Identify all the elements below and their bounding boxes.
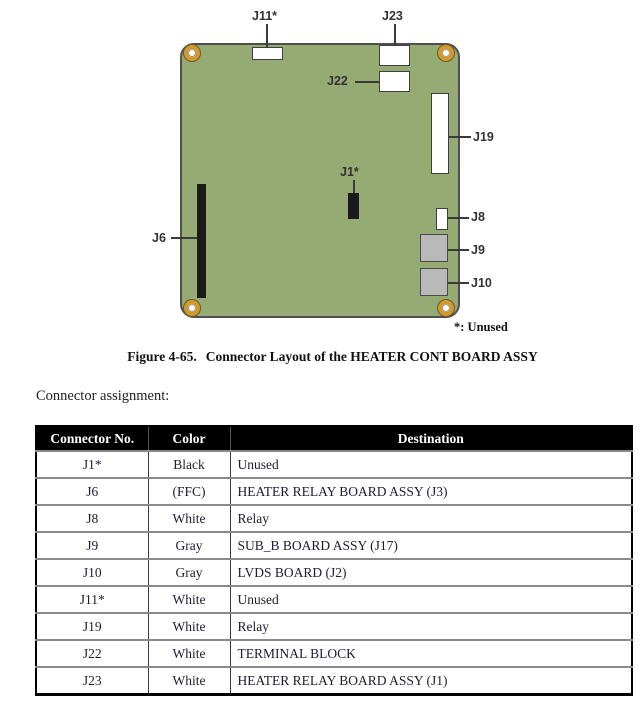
manual-page: J11* J23 J22 J19 J1* J6 J8 J9 J10 *: Unu… (0, 0, 640, 704)
cell-connector: J11* (36, 586, 148, 613)
table-row: J9 Gray SUB_B BOARD ASSY (J17) (36, 532, 632, 559)
cell-destination: Relay (230, 505, 632, 532)
cell-destination: TERMINAL BLOCK (230, 640, 632, 667)
table-row: J22 White TERMINAL BLOCK (36, 640, 632, 667)
label-j11: J11* (252, 9, 277, 23)
cell-color: White (148, 667, 230, 695)
table-header-row: Connector No. Color Destination (36, 426, 632, 451)
leader-line-j22 (355, 81, 379, 83)
figure-number: Figure 4-65. (127, 349, 197, 364)
label-j8: J8 (471, 210, 485, 224)
header-color: Color (148, 426, 230, 451)
connector-j8 (436, 208, 448, 230)
leader-line-j19 (449, 136, 471, 138)
table-row: J1* Black Unused (36, 451, 632, 478)
cell-connector: J1* (36, 451, 148, 478)
table-row: J6 (FFC) HEATER RELAY BOARD ASSY (J3) (36, 478, 632, 505)
unused-footnote: *: Unused (454, 320, 508, 335)
connector-assignment-heading: Connector assignment: (36, 388, 169, 405)
mounting-hole-top-left (184, 45, 200, 61)
cell-color: White (148, 586, 230, 613)
cell-color: White (148, 640, 230, 667)
connector-j22 (379, 71, 410, 92)
connector-layout-diagram: J11* J23 J22 J19 J1* J6 J8 J9 J10 *: Unu… (0, 0, 640, 345)
label-j19: J19 (473, 130, 494, 144)
label-j23: J23 (382, 9, 403, 23)
mounting-hole-bottom-right (438, 300, 454, 316)
connector-j23 (379, 45, 410, 66)
table-row: J10 Gray LVDS BOARD (J2) (36, 559, 632, 586)
cell-color: Gray (148, 532, 230, 559)
leader-line-j8 (448, 217, 469, 219)
table-row: J11* White Unused (36, 586, 632, 613)
cell-connector: J9 (36, 532, 148, 559)
cell-color: Gray (148, 559, 230, 586)
cell-destination: Unused (230, 451, 632, 478)
header-destination: Destination (230, 426, 632, 451)
cell-destination: Relay (230, 613, 632, 640)
connector-j10 (420, 268, 448, 296)
leader-line-j1 (353, 180, 355, 193)
cell-connector: J8 (36, 505, 148, 532)
connector-j19 (431, 93, 449, 174)
cell-destination: LVDS BOARD (J2) (230, 559, 632, 586)
cell-color: White (148, 505, 230, 532)
cell-connector: J22 (36, 640, 148, 667)
label-j10: J10 (471, 276, 492, 290)
mounting-hole-top-right (438, 45, 454, 61)
pcb-board (180, 43, 460, 318)
label-j9: J9 (471, 243, 485, 257)
mounting-hole-bottom-left (184, 300, 200, 316)
table-row: J23 White HEATER RELAY BOARD ASSY (J1) (36, 667, 632, 695)
leader-line-j23 (394, 24, 396, 46)
cell-destination: Unused (230, 586, 632, 613)
connector-j9 (420, 234, 448, 262)
connector-j11 (252, 47, 283, 60)
connector-j1 (348, 193, 359, 219)
cell-connector: J6 (36, 478, 148, 505)
leader-line-j9 (448, 249, 469, 251)
label-j6: J6 (152, 231, 166, 245)
cell-connector: J23 (36, 667, 148, 695)
cell-color: White (148, 613, 230, 640)
cell-connector: J19 (36, 613, 148, 640)
connector-table: Connector No. Color Destination J1* Blac… (35, 425, 633, 696)
leader-line-j6 (171, 237, 197, 239)
cell-color: (FFC) (148, 478, 230, 505)
label-j22: J22 (327, 74, 348, 88)
figure-title: Connector Layout of the HEATER CONT BOAR… (206, 349, 538, 364)
connector-j6 (197, 184, 206, 298)
cell-destination: SUB_B BOARD ASSY (J17) (230, 532, 632, 559)
connector-table-wrapper: Connector No. Color Destination J1* Blac… (35, 425, 635, 696)
label-j1: J1* (340, 165, 359, 179)
table-row: J8 White Relay (36, 505, 632, 532)
cell-color: Black (148, 451, 230, 478)
leader-line-j11 (266, 24, 268, 48)
leader-line-j10 (448, 282, 469, 284)
header-connector-no: Connector No. (36, 426, 148, 451)
cell-connector: J10 (36, 559, 148, 586)
table-row: J19 White Relay (36, 613, 632, 640)
figure-caption: Figure 4-65.Connector Layout of the HEAT… (0, 349, 640, 365)
cell-destination: HEATER RELAY BOARD ASSY (J3) (230, 478, 632, 505)
cell-destination: HEATER RELAY BOARD ASSY (J1) (230, 667, 632, 695)
